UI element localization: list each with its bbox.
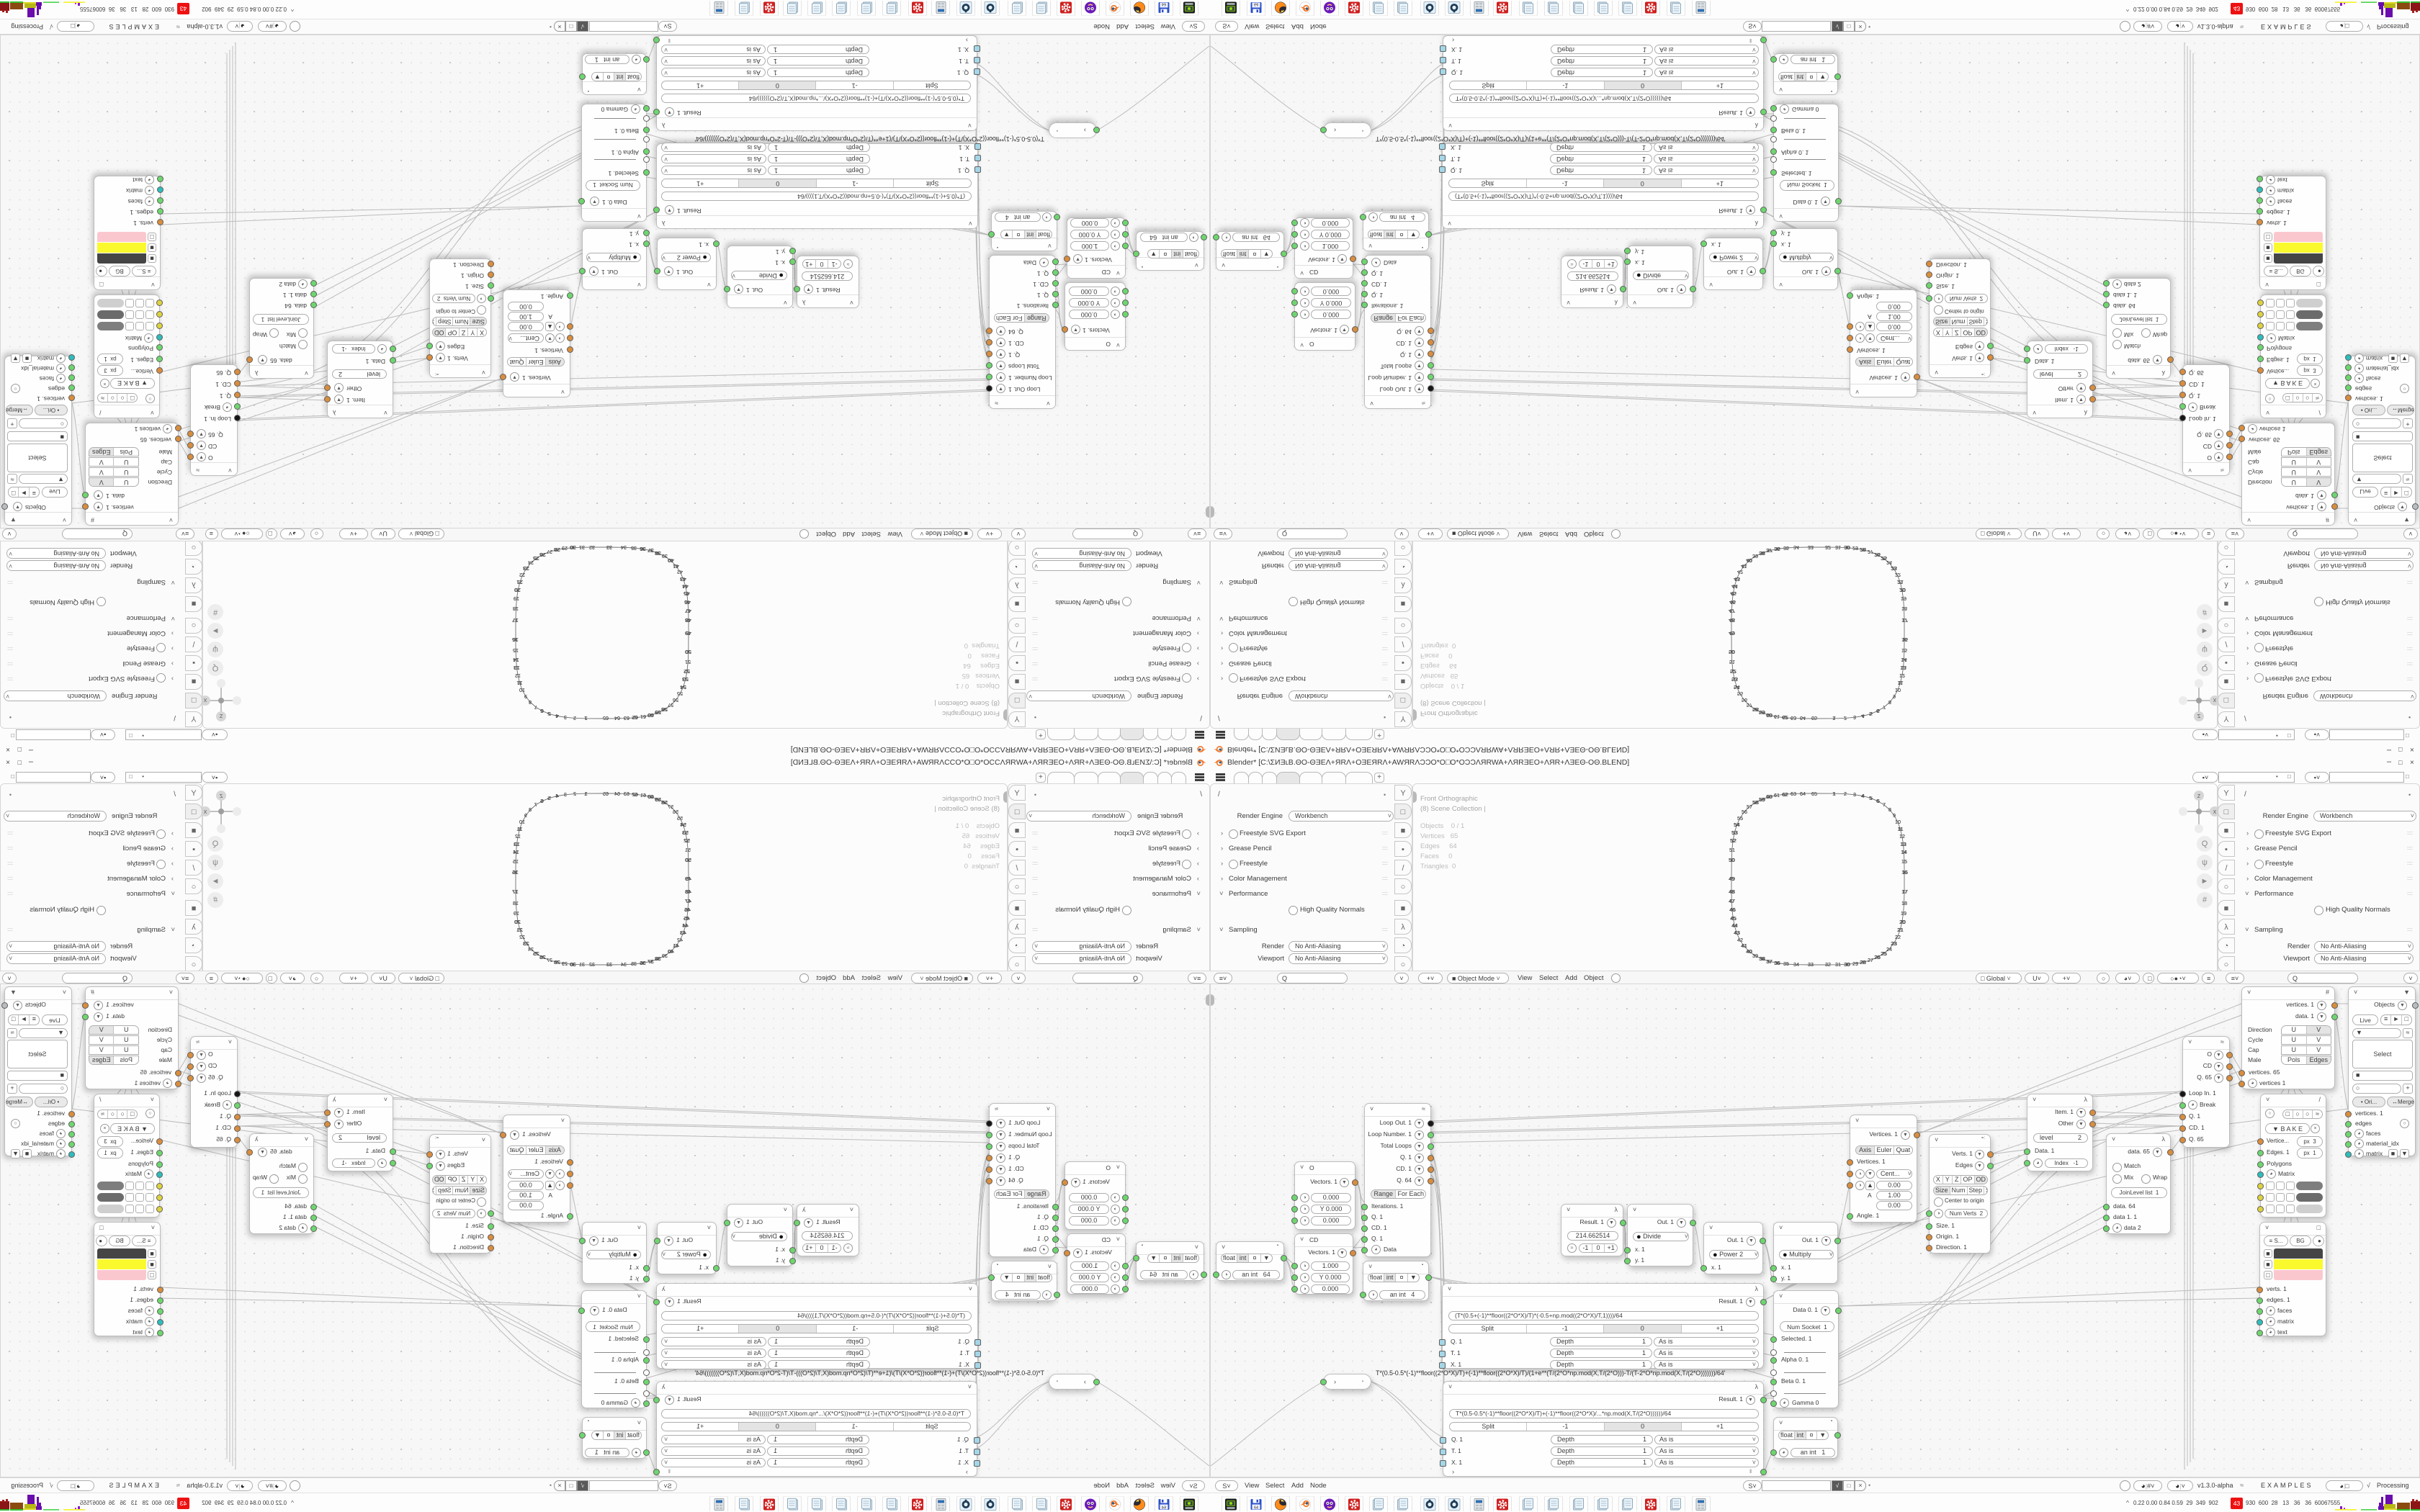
svg-text:40: 40 [668,948,673,955]
svg-text:10: 10 [1895,819,1901,825]
svg-text:X: X [2213,697,2217,702]
svg-text:59: 59 [655,709,660,716]
svg-text:1: 1 [1833,791,1836,797]
svg-text:15: 15 [1901,647,1907,654]
svg-text:60: 60 [647,712,653,719]
svg-text:63: 63 [1791,791,1796,797]
svg-text:53: 53 [1732,676,1738,683]
svg-text:19: 19 [514,910,519,917]
svg-text:51: 51 [685,659,691,665]
svg-text:14: 14 [1901,657,1907,663]
svg-text:60: 60 [1767,793,1773,800]
svg-text:29: 29 [562,960,568,967]
svg-text:9: 9 [524,693,527,700]
svg-text:18: 18 [1901,900,1907,906]
svg-text:45: 45 [1731,590,1736,597]
svg-text:63: 63 [624,791,629,797]
svg-text:10: 10 [1895,687,1901,693]
svg-text:39: 39 [1752,953,1758,959]
svg-text:59: 59 [655,796,660,803]
svg-text:1: 1 [584,715,587,721]
svg-text:64: 64 [1800,715,1806,721]
svg-text:21: 21 [516,927,522,933]
svg-text:43: 43 [680,576,686,582]
svg-text:2: 2 [1844,715,1847,721]
svg-text:55: 55 [677,815,683,822]
svg-text:57: 57 [668,804,673,810]
svg-text:53: 53 [682,676,688,683]
svg-text:2: 2 [573,791,576,797]
svg-text:54: 54 [1734,822,1740,828]
svg-text:15: 15 [1901,858,1907,865]
svg-text:22: 22 [1895,934,1901,940]
svg-text:42: 42 [677,569,683,575]
svg-text:7: 7 [534,801,537,808]
svg-text:65: 65 [603,715,609,721]
svg-text:63: 63 [1791,715,1796,721]
svg-text:14: 14 [1901,849,1907,855]
svg-text:45: 45 [684,590,689,597]
svg-text:54: 54 [680,684,686,690]
svg-text:65: 65 [603,791,609,797]
svg-text:17: 17 [1902,617,1908,624]
svg-text:16: 16 [1902,869,1908,876]
svg-text:47: 47 [1729,608,1735,614]
svg-text:47: 47 [1729,898,1735,904]
svg-text:41: 41 [673,942,678,949]
svg-text:8: 8 [1888,806,1891,813]
svg-text:58: 58 [661,706,667,713]
svg-text:42: 42 [677,937,683,943]
svg-text:50: 50 [685,857,691,863]
svg-text:26: 26 [539,552,545,558]
svg-text:11: 11 [1898,826,1903,832]
svg-text:31: 31 [1835,544,1841,551]
svg-text:4: 4 [555,793,558,799]
svg-text:16: 16 [1902,636,1908,643]
svg-text:18: 18 [513,900,519,906]
svg-text:Z: Z [219,713,223,718]
svg-text:43: 43 [1734,576,1740,582]
svg-text:31: 31 [1835,961,1841,968]
svg-text:3: 3 [564,791,567,798]
svg-text:52: 52 [1731,837,1736,844]
svg-text:19: 19 [1901,910,1906,917]
svg-text:62: 62 [1783,714,1788,721]
svg-text:7: 7 [534,704,537,711]
svg-text:64: 64 [1254,1506,1258,1510]
svg-text:64: 64 [1162,1506,1166,1510]
svg-text:36: 36 [640,546,645,552]
svg-text:35: 35 [631,960,637,967]
svg-text:16: 16 [512,869,518,876]
svg-text:37: 37 [1767,547,1773,554]
svg-text:41: 41 [1742,942,1747,949]
svg-text:35: 35 [1783,960,1789,967]
svg-text:26: 26 [1875,552,1881,558]
svg-text:28: 28 [554,546,560,553]
svg-text:34: 34 [621,544,627,551]
svg-text:55: 55 [677,690,683,697]
svg-text:20: 20 [1900,587,1906,593]
svg-text:33: 33 [1808,544,1814,551]
svg-text:4: 4 [1862,793,1865,799]
svg-text:7: 7 [1883,704,1886,711]
svg-text:38: 38 [655,550,660,557]
svg-text:19: 19 [1901,595,1906,602]
svg-text:62: 62 [1783,791,1788,798]
svg-text:8: 8 [1888,699,1891,706]
svg-text:32: 32 [1825,544,1831,551]
svg-text:1: 1 [1833,715,1836,721]
svg-text:30: 30 [570,544,575,551]
svg-text:18: 18 [1901,606,1907,612]
svg-text:40: 40 [1747,948,1752,955]
svg-text:36: 36 [1775,960,1780,966]
svg-text:20: 20 [514,919,520,925]
svg-text:5: 5 [1870,795,1873,801]
svg-text:16: 16 [512,636,518,643]
svg-text:23: 23 [1891,565,1897,572]
svg-text:28: 28 [1860,546,1866,553]
svg-text:64: 64 [1162,2,1166,6]
svg-text:51: 51 [1729,659,1735,665]
svg-text:34: 34 [1793,544,1799,551]
svg-text:52: 52 [684,837,689,844]
svg-text:58: 58 [1753,799,1759,806]
svg-text:31: 31 [579,544,585,551]
svg-text:X: X [203,810,207,815]
svg-text:57: 57 [1747,804,1752,810]
svg-text:17: 17 [1902,888,1908,895]
svg-text:8: 8 [529,806,532,813]
svg-text:63: 63 [624,715,629,721]
svg-text:5: 5 [547,711,550,717]
svg-text:48: 48 [1729,617,1735,624]
svg-text:49: 49 [685,876,691,882]
svg-text:61: 61 [640,792,646,798]
svg-text:31: 31 [579,961,585,968]
svg-text:46: 46 [1730,906,1736,913]
svg-text:52: 52 [684,668,689,675]
svg-text:43: 43 [1734,930,1740,936]
svg-text:29: 29 [562,545,568,552]
svg-text:Z: Z [219,794,223,799]
svg-text:58: 58 [661,799,667,806]
svg-text:32: 32 [589,961,595,968]
svg-text:3: 3 [564,714,567,721]
svg-text:44: 44 [682,922,688,929]
svg-text:26: 26 [1875,954,1881,960]
svg-text:24: 24 [1886,559,1892,566]
svg-text:64: 64 [614,791,620,797]
svg-text:65: 65 [1811,791,1817,797]
svg-text:22: 22 [1895,572,1901,578]
svg-text:30: 30 [1845,961,1850,968]
svg-text:44: 44 [1732,922,1738,929]
svg-text:46: 46 [1730,599,1736,606]
svg-text:27: 27 [547,549,552,555]
svg-text:21: 21 [516,579,522,585]
svg-text:53: 53 [1732,829,1738,836]
svg-text:27: 27 [1868,549,1873,555]
svg-text:61: 61 [1774,714,1780,720]
svg-text:22: 22 [519,572,525,578]
svg-text:21: 21 [1898,927,1904,933]
svg-text:59: 59 [1760,709,1765,716]
svg-text:34: 34 [1793,961,1799,968]
svg-text:54: 54 [1734,684,1740,690]
svg-text:2: 2 [1844,791,1847,797]
svg-text:49: 49 [1729,630,1735,636]
svg-text:39: 39 [662,553,668,559]
svg-text:36: 36 [1775,546,1780,552]
svg-text:49: 49 [685,630,691,636]
svg-text:8: 8 [529,699,532,706]
svg-text:13: 13 [1901,841,1906,847]
svg-text:40: 40 [1747,557,1752,564]
svg-text:3: 3 [1853,791,1856,798]
svg-text:13: 13 [514,665,519,671]
svg-text:44: 44 [1732,583,1738,590]
svg-text:11: 11 [516,680,521,686]
svg-text:29: 29 [1852,545,1858,552]
svg-text:43: 43 [680,930,686,936]
svg-text:11: 11 [1898,680,1903,686]
svg-text:5: 5 [547,795,550,801]
svg-text:32: 32 [1825,961,1831,968]
svg-text:21: 21 [1898,579,1904,585]
svg-text:11: 11 [516,826,521,832]
svg-text:22: 22 [519,934,525,940]
svg-text:47: 47 [685,898,691,904]
svg-text:61: 61 [1774,792,1780,798]
svg-text:61: 61 [640,714,646,720]
svg-text:59: 59 [1760,796,1765,803]
svg-text:30: 30 [570,961,575,968]
svg-text:42: 42 [1737,937,1743,943]
svg-text:17: 17 [512,888,518,895]
svg-text:37: 37 [647,547,653,554]
svg-text:38: 38 [1760,955,1765,962]
svg-text:25: 25 [533,555,539,562]
svg-text:25: 25 [533,950,539,957]
svg-text:14: 14 [513,849,519,855]
svg-text:38: 38 [1760,550,1765,557]
svg-text:53: 53 [682,829,688,836]
svg-text:35: 35 [631,545,637,552]
svg-text:62: 62 [632,791,637,798]
svg-text:5: 5 [1870,711,1873,717]
svg-text:34: 34 [621,961,627,968]
svg-text:55: 55 [1737,690,1743,697]
svg-text:37: 37 [1767,958,1773,965]
svg-text:17: 17 [512,617,518,624]
svg-text:6: 6 [540,798,543,804]
svg-text:54: 54 [680,822,686,828]
svg-text:3: 3 [1853,714,1856,721]
svg-text:48: 48 [685,617,691,624]
svg-text:57: 57 [1747,702,1752,708]
svg-text:10: 10 [519,819,525,825]
svg-text:23: 23 [1891,940,1897,947]
svg-text:12: 12 [1899,833,1905,840]
svg-text:1: 1 [584,791,587,797]
svg-text:48: 48 [685,888,691,895]
svg-text:15: 15 [513,858,519,865]
svg-text:13: 13 [1901,665,1906,671]
svg-text:64: 64 [1800,791,1806,797]
svg-text:27: 27 [547,957,552,963]
svg-text:29: 29 [1852,960,1858,967]
svg-text:23: 23 [523,565,529,572]
svg-text:64: 64 [614,715,620,721]
svg-text:60: 60 [1767,712,1773,719]
svg-text:Z: Z [2197,713,2201,718]
svg-text:2: 2 [573,715,576,721]
svg-text:39: 39 [662,953,668,959]
svg-text:12: 12 [1899,672,1905,679]
svg-text:12: 12 [515,672,521,679]
svg-text:7: 7 [1883,801,1886,808]
svg-text:24: 24 [1886,946,1892,953]
svg-text:36: 36 [640,960,645,966]
svg-text:6: 6 [1877,708,1880,714]
svg-text:Z: Z [2197,794,2201,799]
svg-text:48: 48 [1729,888,1735,895]
svg-text:55: 55 [1737,815,1743,822]
svg-text:37: 37 [647,958,653,965]
svg-text:30: 30 [1845,544,1850,551]
svg-text:13: 13 [514,841,519,847]
svg-text:49: 49 [1729,876,1735,882]
svg-text:9: 9 [1893,693,1896,700]
svg-text:X: X [203,697,207,702]
svg-text:44: 44 [682,583,688,590]
svg-text:42: 42 [1737,569,1743,575]
svg-text:38: 38 [655,955,660,962]
svg-text:15: 15 [513,647,519,654]
svg-text:64: 64 [1254,2,1258,6]
svg-text:33: 33 [1808,961,1814,968]
svg-text:39: 39 [1752,553,1758,559]
svg-text:20: 20 [514,587,520,593]
svg-text:45: 45 [684,915,689,922]
svg-text:28: 28 [1860,959,1866,966]
svg-text:60: 60 [647,793,653,800]
svg-text:4: 4 [1862,713,1865,719]
svg-text:46: 46 [684,599,690,606]
svg-text:35: 35 [1783,545,1789,552]
svg-text:26: 26 [539,954,545,960]
svg-text:9: 9 [1893,812,1896,819]
svg-text:51: 51 [685,847,691,853]
svg-text:20: 20 [1900,919,1906,925]
svg-text:19: 19 [514,595,519,602]
svg-text:9: 9 [524,812,527,819]
svg-text:51: 51 [1729,847,1735,853]
svg-text:62: 62 [632,714,637,721]
svg-text:56: 56 [673,809,678,815]
svg-text:65: 65 [1811,715,1817,721]
svg-text:50: 50 [1729,857,1735,863]
svg-text:25: 25 [1881,555,1887,562]
svg-text:52: 52 [1731,668,1736,675]
svg-text:46: 46 [684,906,690,913]
svg-text:25: 25 [1881,950,1887,957]
svg-text:50: 50 [1729,649,1735,655]
svg-text:18: 18 [513,606,519,612]
svg-text:12: 12 [515,833,521,840]
svg-text:45: 45 [1731,915,1736,922]
svg-text:6: 6 [1877,798,1880,804]
svg-text:32: 32 [589,544,595,551]
svg-text:33: 33 [606,544,612,551]
svg-text:4: 4 [555,713,558,719]
svg-text:50: 50 [685,649,691,655]
svg-text:56: 56 [673,697,678,703]
svg-text:58: 58 [1753,706,1759,713]
svg-text:27: 27 [1868,957,1873,963]
svg-text:10: 10 [519,687,525,693]
svg-text:6: 6 [540,708,543,714]
svg-text:57: 57 [668,702,673,708]
svg-text:14: 14 [513,657,519,663]
svg-text:33: 33 [606,961,612,968]
svg-text:X: X [2213,810,2217,815]
svg-text:47: 47 [685,608,691,614]
svg-text:28: 28 [554,959,560,966]
